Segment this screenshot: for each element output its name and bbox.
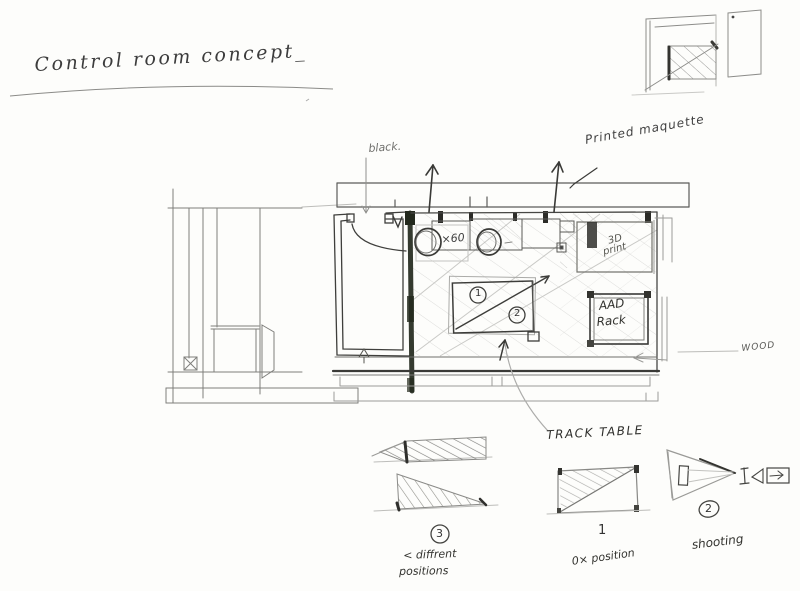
figure-positions-3 [372, 437, 498, 543]
sketch-linework [0, 0, 800, 591]
wall-tick-marks [438, 211, 651, 223]
figure-middle-number: 1 [598, 523, 606, 538]
figure-right-caption: shooting [691, 532, 744, 552]
dimension-brackets [334, 215, 738, 401]
plan-walls [333, 183, 689, 392]
x60-note: ×60 [441, 231, 465, 246]
figure-middle-caption: 0× position [571, 546, 635, 568]
figure-left-caption-line2: positions [399, 564, 449, 578]
track-table-annotation: TRACK TABLE [546, 423, 644, 442]
figure-right-number: 2 [705, 502, 712, 515]
title-underline [10, 86, 333, 101]
left-elevation-drawing [166, 189, 358, 403]
figure-shooting [667, 450, 789, 519]
figure-position-1 [547, 465, 650, 514]
sketch-page: Control room concept_ black. Printed maq… [0, 0, 800, 591]
rack-label-line1: AAD [598, 296, 625, 313]
figure-left-caption-line1: < diffrent [403, 547, 457, 562]
figure-left-number: 3 [436, 527, 443, 540]
black-wall [405, 211, 415, 392]
table-position-marker-2: 2 [514, 308, 520, 319]
wood-annotation: WOOD [741, 340, 776, 353]
track-table [449, 276, 549, 341]
page-title: Control room concept_ [34, 40, 307, 76]
black-annotation: black. [368, 140, 402, 155]
print-3d-label-line2: print [602, 241, 627, 257]
table-position-marker-1: 1 [475, 288, 481, 299]
thumbnail-elevation-sketch [632, 10, 761, 95]
printed-maquette-annotation: Printed maquette [584, 112, 706, 147]
rack-label-line2: Rack [596, 312, 626, 328]
